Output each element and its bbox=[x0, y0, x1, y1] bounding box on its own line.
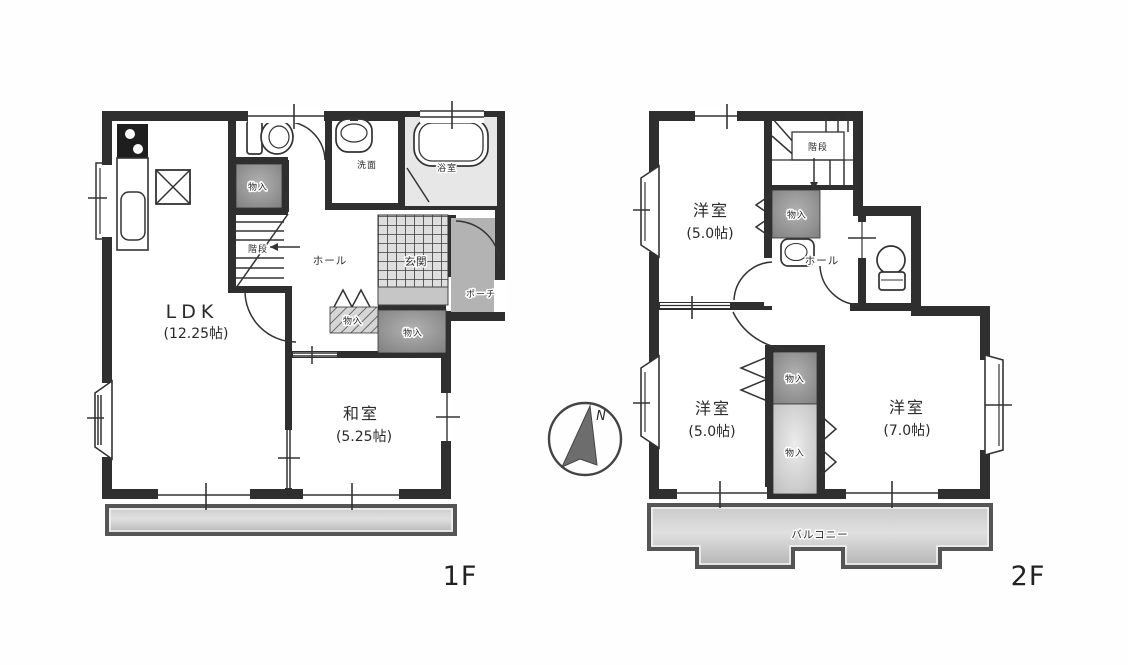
label-room2-size: (5.0帖) bbox=[688, 424, 735, 440]
label-closet-2f-a: 物入 bbox=[787, 209, 807, 221]
label-room1-size: (5.0帖) bbox=[686, 226, 733, 242]
compass-icon: N bbox=[549, 403, 621, 475]
label-stairs-2f: 階段 bbox=[808, 141, 828, 153]
label-washitsu-size: (5.25帖) bbox=[336, 429, 392, 445]
label-closet-2f-c: 物入 bbox=[785, 447, 805, 459]
label-closet-1f-a: 物入 bbox=[248, 181, 268, 193]
toilet-icon-2f bbox=[877, 246, 905, 290]
floorplan-drawing: LDK (12.25帖) 和室 (5.25帖) ホール 階段 玄関 ポーチ 洗面… bbox=[0, 0, 1128, 665]
label-washroom: 洗面 bbox=[357, 159, 377, 171]
label-washitsu: 和室 bbox=[343, 404, 379, 423]
label-genkan: 玄関 bbox=[405, 255, 428, 268]
washbasin-icon-1f bbox=[336, 117, 372, 152]
bay-window-2f-right bbox=[980, 355, 1012, 455]
kitchen-sink-icon bbox=[121, 192, 145, 240]
compass-north-label: N bbox=[596, 409, 606, 424]
floor-2-plan: 洋室 (5.0帖) 洋室 (5.0帖) 洋室 (7.0帖) 階段 ホール バルコ… bbox=[633, 104, 1045, 592]
label-hall-1f: ホール bbox=[313, 255, 348, 267]
toilet-icon-1f bbox=[247, 120, 293, 154]
floorplan-canvas: LDK (12.25帖) 和室 (5.25帖) ホール 階段 玄関 ポーチ 洗面… bbox=[0, 0, 1128, 665]
label-room2: 洋室 bbox=[695, 399, 731, 418]
bathtub-icon bbox=[414, 118, 488, 166]
bay-window-1f bbox=[87, 381, 112, 459]
floor-label-2f: 2F bbox=[1011, 561, 1046, 592]
label-room3-size: (7.0帖) bbox=[883, 423, 930, 439]
genkan-tile-floor bbox=[378, 215, 448, 287]
window-frame-left-1f bbox=[88, 163, 112, 239]
label-bathroom: 浴室 bbox=[437, 162, 457, 174]
floor-label-1f: 1F bbox=[443, 561, 478, 592]
label-ldk-size: (12.25帖) bbox=[163, 326, 228, 342]
label-porch: ポーチ bbox=[466, 289, 496, 300]
bay-window-2f-upper-left bbox=[633, 166, 659, 257]
label-closet-2f-b: 物入 bbox=[785, 373, 805, 385]
label-room3: 洋室 bbox=[889, 398, 925, 417]
label-balcony: バルコニー bbox=[791, 529, 848, 541]
genkan-step bbox=[378, 287, 448, 305]
label-closet-1f-c: 物入 bbox=[403, 327, 423, 339]
bay-window-2f-lower-left bbox=[633, 356, 659, 448]
stove-icon bbox=[117, 124, 148, 158]
label-closet-1f-b: 物入 bbox=[343, 315, 363, 327]
label-stairs-1f: 階段 bbox=[248, 243, 268, 255]
terrace-deck bbox=[107, 506, 455, 534]
label-room1: 洋室 bbox=[693, 201, 729, 220]
label-ldk: LDK bbox=[166, 301, 219, 323]
floor-1-plan: LDK (12.25帖) 和室 (5.25帖) ホール 階段 玄関 ポーチ 洗面… bbox=[87, 101, 506, 592]
label-hall-2f: ホール bbox=[805, 255, 840, 267]
